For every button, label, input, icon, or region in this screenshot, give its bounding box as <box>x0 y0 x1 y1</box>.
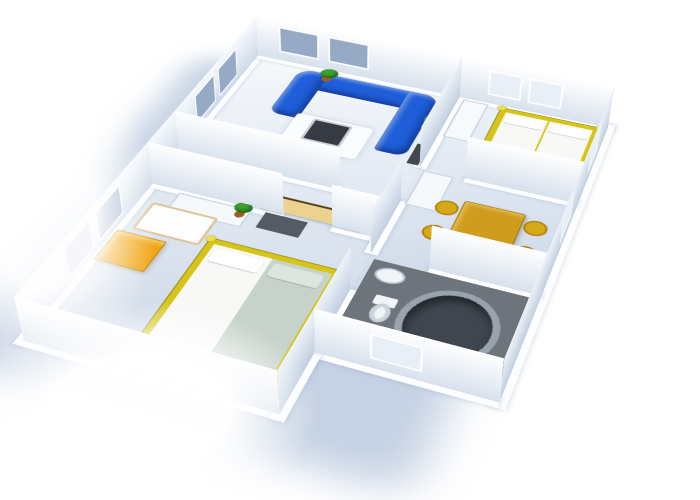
window <box>488 70 523 101</box>
window <box>279 27 319 60</box>
window <box>328 37 369 71</box>
floorplan-render <box>0 0 700 500</box>
bed-post <box>205 235 217 243</box>
window <box>527 78 564 109</box>
bed-post <box>497 105 507 111</box>
apartment-floor-plane <box>24 57 608 472</box>
window <box>370 333 424 372</box>
